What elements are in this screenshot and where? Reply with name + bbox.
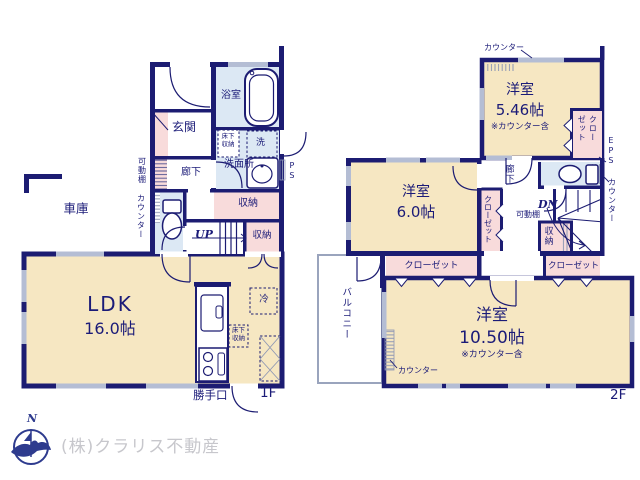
washer-label: 洗 [256, 138, 265, 149]
underfloor-storage-label-kitchen: 床下収納 [229, 327, 248, 342]
storage-1-label: 収納 [216, 198, 280, 210]
room-a-label: 洋室 [488, 82, 552, 99]
stairs-down-label: DN [538, 199, 558, 212]
counter-2f-right-label: カウンター [607, 178, 616, 230]
room-b-label: 洋室 [384, 184, 448, 201]
movable-shelf-2f-label: 可動棚 [516, 210, 540, 219]
room-a-note-label: ※カウンター含 [480, 122, 560, 132]
storage-2f-label: 収納 [542, 226, 553, 250]
bathroom-label: 浴室 [216, 90, 246, 102]
hallway-1f-label: 廊下 [170, 167, 212, 179]
room-b-size-label: 6.0帖 [384, 204, 448, 222]
compass-icon [11, 430, 51, 464]
bathtub-icon [245, 69, 278, 126]
ldk-label: LDK [60, 293, 160, 317]
closet-c-label: クローゼット [386, 261, 477, 272]
floor1-label: 1F [260, 386, 276, 402]
room-c-note-label: ※カウンター含 [448, 350, 536, 361]
room-c-size-label: 10.50帖 [448, 328, 536, 348]
toilet-icon-1f [163, 200, 182, 239]
washroom-label: 洗面所 [216, 159, 262, 171]
closet-a-label: クローゼット [576, 115, 598, 147]
counter-2f-top-label: カウンター [484, 43, 524, 52]
entrance-label: 玄関 [158, 120, 210, 134]
room-a-size-label: 5.46帖 [484, 102, 556, 120]
counter-1f-label: カウンター [136, 194, 145, 246]
back-door-label: 勝手口 [193, 389, 228, 403]
room-c-label: 洋室 [448, 306, 536, 325]
fridge-label: 冷 [250, 294, 278, 305]
ldk-size-label: 16.0帖 [60, 320, 160, 339]
counter-2f-bottom-label: カウンター [398, 366, 438, 375]
stairs-up-label: UP [195, 229, 213, 242]
movable-shelf-1f-label: 可動棚 [137, 157, 146, 195]
garage-label: 車庫 [56, 202, 96, 217]
storage-2-label: 収納 [245, 230, 279, 241]
stove-icon [199, 348, 227, 381]
compass-north-label: N [27, 413, 37, 426]
eps-label: EPS [606, 136, 615, 168]
underfloor-storage-label-1f: 床下収納 [219, 133, 237, 148]
floor-plan: 車庫 玄関 浴室 床下収納 洗 洗面所 廊下 可動棚 カウンター PS 収納 U… [0, 0, 640, 480]
balcony-label: バルコニー [340, 287, 351, 347]
company-name: (株)クラリス不動産 [61, 437, 220, 457]
pipe-space-label: PS [287, 161, 296, 183]
pipe-space-box-1f [280, 160, 285, 180]
floor2-label: 2F [610, 388, 626, 404]
closet-d-label: クローゼット [546, 261, 601, 271]
closet-b-label: クローゼット [483, 195, 492, 249]
hallway-2f-label: 廊下 [503, 164, 514, 190]
